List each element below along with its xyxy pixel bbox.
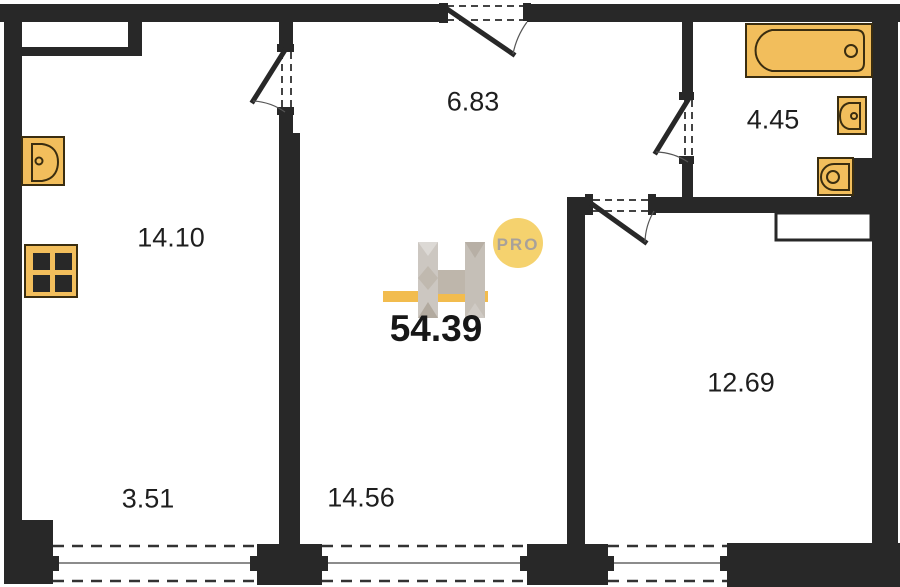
area-label-alcove: 3.51 [122, 484, 175, 515]
wall-segment [567, 197, 585, 545]
window-jamb [520, 556, 529, 571]
wall-segment [654, 197, 872, 213]
kitchen-sink-icon [22, 137, 64, 185]
area-label-living: 14.56 [327, 483, 395, 514]
wall-segment [0, 4, 443, 22]
door-swing [253, 44, 294, 115]
window-jamb [604, 556, 614, 571]
wall-segment [527, 4, 900, 22]
wall-segment [851, 158, 872, 198]
bedroom-door-swing [585, 194, 656, 242]
window-jamb [318, 556, 328, 571]
wall-segment [22, 47, 142, 56]
wall-segment [279, 133, 300, 545]
wall-segment [727, 543, 900, 587]
bathroom-door-swing [656, 92, 694, 164]
floor-plan: PRO 14.10 6.83 4.45 12.69 3.51 14.56 54.… [0, 0, 900, 587]
wall-segment [527, 544, 608, 585]
washbasin-icon [838, 97, 866, 134]
logo: PRO [383, 218, 543, 318]
wall-segment [682, 22, 693, 98]
window-jamb [250, 556, 259, 571]
wall-segment [872, 4, 898, 544]
stove-icon [25, 245, 77, 297]
wall-segment [128, 20, 142, 50]
pro-badge-label: PRO [497, 235, 540, 254]
area-label-bathroom: 4.45 [747, 105, 800, 136]
window [49, 546, 259, 581]
wall-segment [279, 22, 293, 47]
wall-segment [4, 520, 53, 584]
window [318, 546, 529, 581]
toilet-icon [818, 158, 853, 195]
logo-h [418, 242, 485, 318]
bathtub-icon [746, 24, 872, 77]
total-area-label: 54.39 [390, 308, 483, 350]
area-label-kitchen: 14.10 [137, 223, 205, 254]
wall-segment [257, 544, 322, 585]
window-jamb [720, 556, 729, 571]
window-jamb [49, 556, 59, 571]
window [604, 546, 729, 581]
area-label-hallway: 6.83 [447, 87, 500, 118]
entry-door-swing [439, 3, 531, 54]
area-label-bedroom: 12.69 [707, 368, 775, 399]
wall-segment [4, 4, 22, 522]
wardrobe-niche [776, 213, 871, 240]
wall-segment [279, 112, 293, 135]
